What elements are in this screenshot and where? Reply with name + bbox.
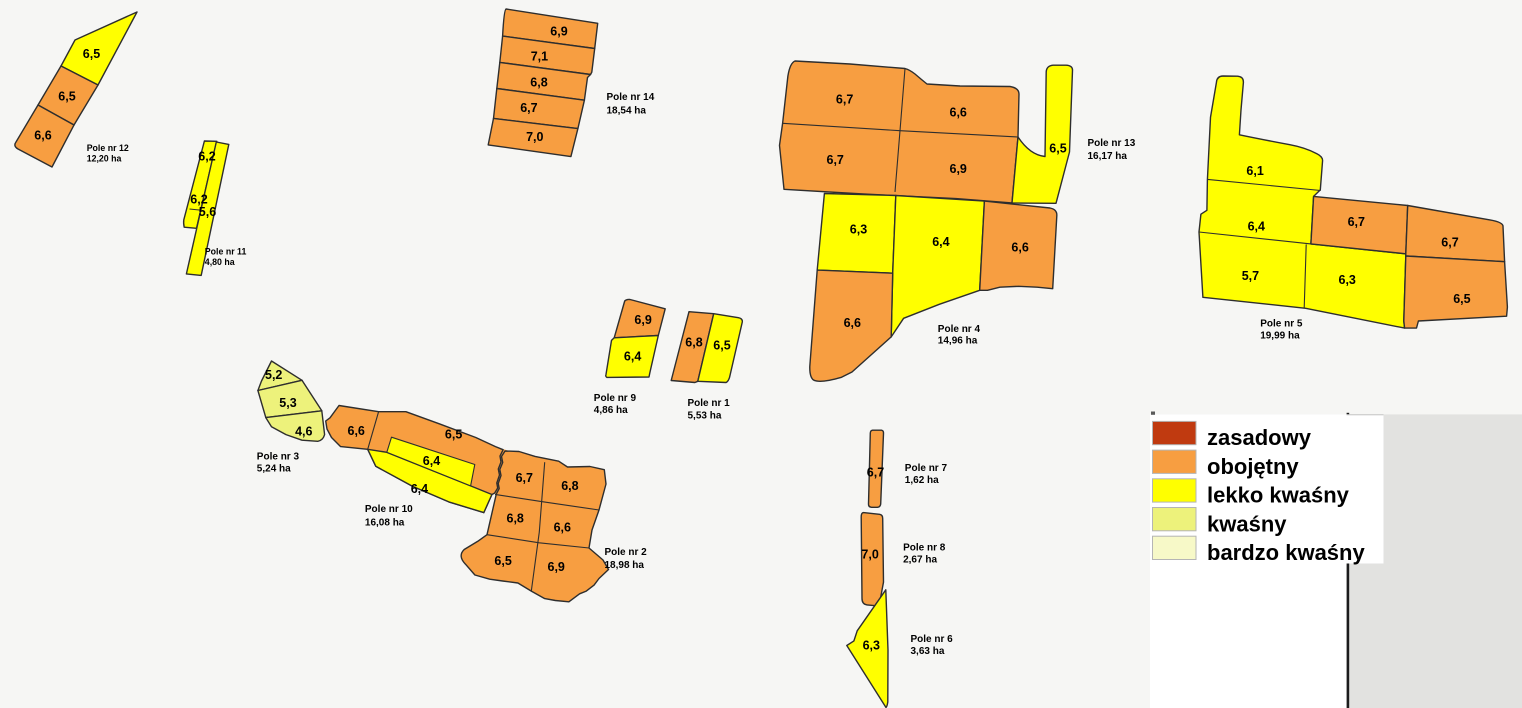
svg-text:Pole nr 10: Pole nr 10 <box>365 504 413 515</box>
svg-text:6,8: 6,8 <box>685 336 702 350</box>
svg-text:12,20 ha: 12,20 ha <box>87 154 122 164</box>
svg-text:5,3: 5,3 <box>279 396 296 410</box>
svg-text:6,1: 6,1 <box>1246 164 1263 178</box>
svg-text:6,9: 6,9 <box>950 162 967 176</box>
svg-text:Pole nr 8: Pole nr 8 <box>903 543 946 554</box>
svg-text:Pole nr 1: Pole nr 1 <box>688 398 731 409</box>
svg-text:6,9: 6,9 <box>550 25 567 39</box>
svg-text:Pole nr 9: Pole nr 9 <box>594 393 637 404</box>
svg-text:Pole nr 6: Pole nr 6 <box>911 634 954 645</box>
svg-text:6,6: 6,6 <box>950 105 967 119</box>
svg-text:6,6: 6,6 <box>554 521 571 535</box>
svg-text:6,7: 6,7 <box>867 466 884 480</box>
svg-text:Pole nr 2: Pole nr 2 <box>605 547 648 558</box>
svg-text:5,6: 5,6 <box>199 205 216 219</box>
svg-text:Pole nr 3: Pole nr 3 <box>257 452 300 463</box>
svg-text:6,5: 6,5 <box>1049 142 1066 156</box>
svg-text:Pole nr 4: Pole nr 4 <box>938 324 981 335</box>
svg-text:6,5: 6,5 <box>83 47 100 61</box>
svg-text:7,0: 7,0 <box>526 130 543 144</box>
svg-text:6,4: 6,4 <box>624 350 641 364</box>
svg-text:6,4: 6,4 <box>1248 220 1265 234</box>
svg-text:7,1: 7,1 <box>531 49 548 63</box>
svg-text:6,5: 6,5 <box>58 90 75 104</box>
svg-text:7,0: 7,0 <box>861 547 878 561</box>
svg-text:Pole nr 7: Pole nr 7 <box>905 463 948 474</box>
svg-text:6,9: 6,9 <box>548 560 565 574</box>
svg-text:4,6: 4,6 <box>295 425 312 439</box>
svg-text:2,67 ha: 2,67 ha <box>903 555 937 566</box>
svg-text:6,4: 6,4 <box>423 454 440 468</box>
svg-text:18,98 ha: 18,98 ha <box>605 560 645 571</box>
svg-text:19,99 ha: 19,99 ha <box>1260 331 1300 342</box>
svg-text:5,24 ha: 5,24 ha <box>257 464 291 475</box>
svg-text:6,5: 6,5 <box>1453 292 1470 306</box>
svg-text:6,6: 6,6 <box>34 129 51 143</box>
svg-text:Pole nr 5: Pole nr 5 <box>1260 319 1303 330</box>
svg-text:Pole nr 12: Pole nr 12 <box>87 143 129 153</box>
svg-text:5,53 ha: 5,53 ha <box>688 410 722 421</box>
svg-text:obojętny: obojętny <box>1207 454 1299 479</box>
svg-text:6,4: 6,4 <box>932 235 949 249</box>
svg-text:1,62 ha: 1,62 ha <box>905 475 939 486</box>
svg-text:kwaśny: kwaśny <box>1207 511 1287 536</box>
svg-text:3,63 ha: 3,63 ha <box>911 646 945 657</box>
svg-text:6,9: 6,9 <box>634 313 651 327</box>
svg-text:6,3: 6,3 <box>863 639 880 653</box>
svg-text:16,17 ha: 16,17 ha <box>1088 151 1128 162</box>
svg-text:Pole nr 11: Pole nr 11 <box>205 247 247 257</box>
svg-text:6,8: 6,8 <box>507 512 524 526</box>
svg-text:4,86 ha: 4,86 ha <box>594 405 628 416</box>
svg-text:bardzo kwaśny: bardzo kwaśny <box>1207 540 1365 565</box>
svg-text:18,54 ha: 18,54 ha <box>607 106 647 117</box>
svg-text:6,2: 6,2 <box>198 150 215 164</box>
svg-text:6,5: 6,5 <box>713 339 730 353</box>
svg-text:6,7: 6,7 <box>836 93 853 107</box>
svg-text:zasadowy: zasadowy <box>1207 425 1312 450</box>
svg-text:6,3: 6,3 <box>1339 273 1356 287</box>
svg-text:4,80 ha: 4,80 ha <box>205 257 235 267</box>
svg-text:Pole nr 14: Pole nr 14 <box>607 92 655 103</box>
svg-text:6,7: 6,7 <box>516 471 533 485</box>
svg-text:6,8: 6,8 <box>530 76 547 90</box>
svg-text:6,7: 6,7 <box>1348 215 1365 229</box>
svg-text:6,5: 6,5 <box>445 428 462 442</box>
svg-text:6,8: 6,8 <box>561 479 578 493</box>
svg-text:14,96 ha: 14,96 ha <box>938 336 978 347</box>
svg-text:6,7: 6,7 <box>827 153 844 167</box>
svg-text:6,7: 6,7 <box>1441 235 1458 249</box>
svg-text:6,3: 6,3 <box>850 223 867 237</box>
svg-text:5,7: 5,7 <box>1242 269 1259 283</box>
svg-text:6,5: 6,5 <box>494 554 511 568</box>
svg-text:6,6: 6,6 <box>1011 240 1028 254</box>
svg-text:6,6: 6,6 <box>844 316 861 330</box>
svg-text:16,08 ha: 16,08 ha <box>365 517 405 528</box>
svg-text:6,6: 6,6 <box>348 424 365 438</box>
svg-text:Pole nr 13: Pole nr 13 <box>1088 138 1136 149</box>
svg-text:lekko kwaśny: lekko kwaśny <box>1207 483 1350 508</box>
svg-text:5,2: 5,2 <box>265 368 282 382</box>
svg-text:6,7: 6,7 <box>520 101 537 115</box>
svg-text:6,4: 6,4 <box>411 482 428 496</box>
